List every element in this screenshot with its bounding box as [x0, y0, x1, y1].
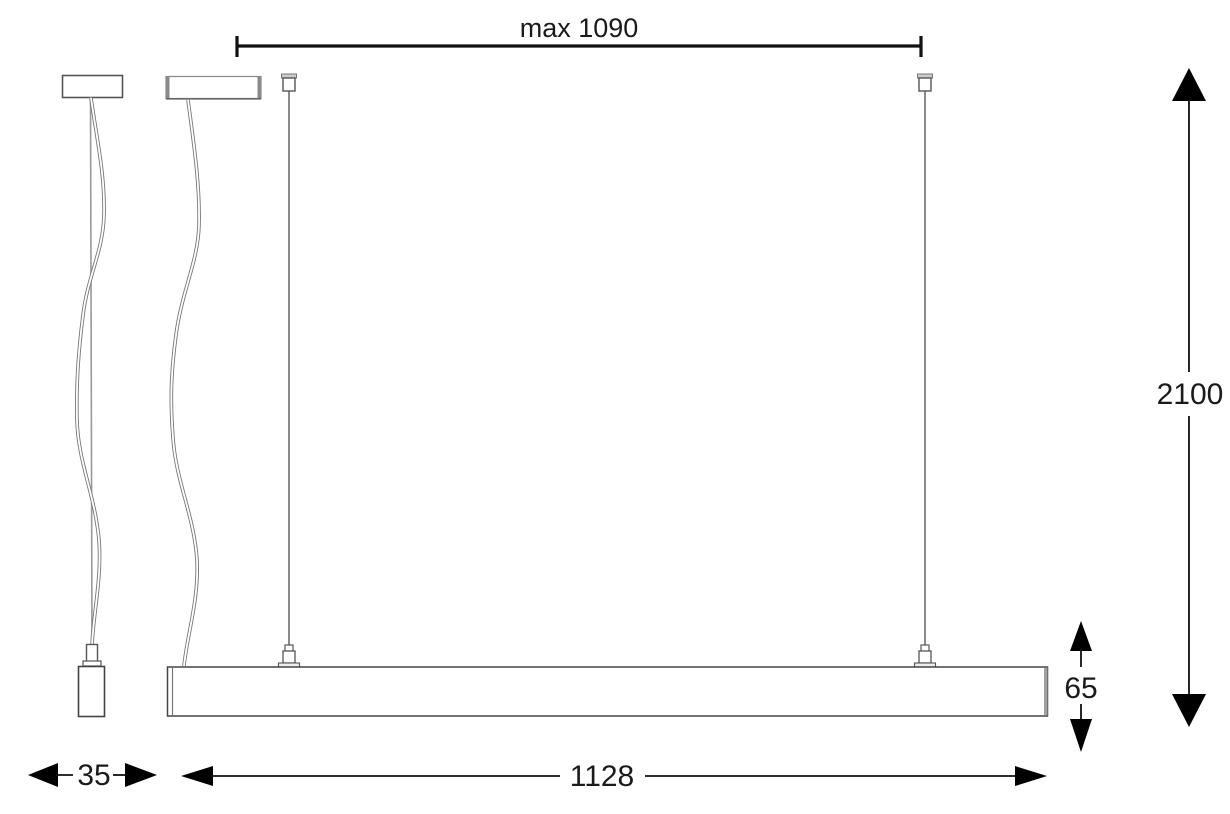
arrow-up-icon: [1172, 68, 1206, 101]
dim-overall-height-label: 2100: [1157, 378, 1224, 411]
dimension-bar-height: 65: [1064, 621, 1097, 752]
arrow-down-icon: [1070, 719, 1092, 752]
side-cable-neck: [87, 645, 98, 662]
side-bar-profile: [79, 667, 105, 717]
front-canopy: [166, 76, 262, 99]
arrow-right-icon: [1015, 766, 1047, 786]
dimension-profile-width: 35: [28, 759, 157, 792]
dim-suspension-max-label: max 1090: [520, 13, 639, 43]
side-suspension-wire: [91, 97, 93, 645]
dimension-overall-height: 2100: [1157, 68, 1224, 727]
side-canopy: [63, 76, 123, 98]
dim-profile-width-label: 35: [77, 759, 110, 792]
light-bar-right-cap: [1044, 668, 1048, 716]
dimension-suspension-max: max 1090: [237, 13, 921, 57]
dimension-bar-length: 1128: [181, 760, 1047, 793]
arrow-down-icon: [1172, 694, 1206, 727]
arrow-left-icon: [28, 763, 58, 787]
side-cable-flange: [83, 661, 101, 666]
front-canopy-left-cap: [166, 76, 170, 99]
arrow-up-icon: [1070, 621, 1092, 651]
technical-drawing: max 1090 2100 65 1128 35: [0, 0, 1230, 814]
right-gripper-body: [919, 651, 931, 663]
front-view: [166, 74, 1048, 716]
light-bar-body: [168, 667, 1048, 716]
arrow-left-icon: [181, 766, 213, 786]
front-power-cable: [171, 100, 199, 666]
side-view: [63, 76, 123, 717]
right-suspension: [915, 74, 936, 668]
arrow-right-icon: [125, 763, 157, 787]
dim-bar-length-label: 1128: [570, 760, 635, 793]
left-ceiling-fixing: [283, 78, 295, 91]
left-gripper-body: [283, 651, 295, 663]
left-suspension: [279, 74, 300, 668]
light-bar: [168, 667, 1048, 716]
right-ceiling-fixing: [919, 78, 931, 91]
front-canopy-right-cap: [258, 76, 262, 99]
drawing-canvas: max 1090 2100 65 1128 35: [0, 0, 1230, 814]
dim-bar-height-label: 65: [1064, 672, 1097, 705]
